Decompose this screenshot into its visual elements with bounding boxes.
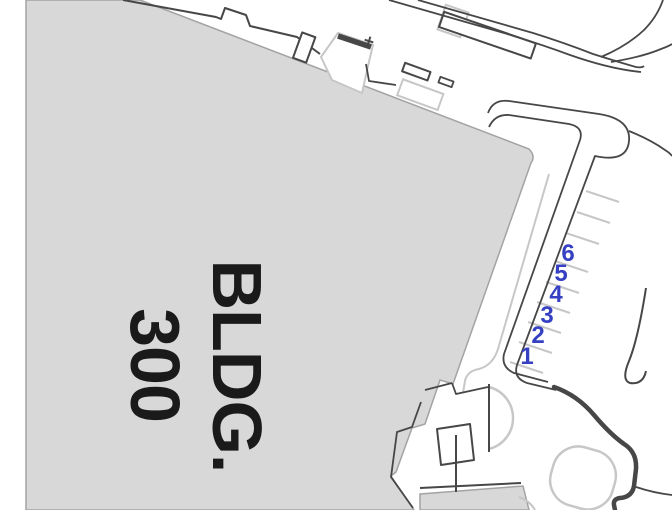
landscape-pad — [544, 440, 622, 510]
median-island — [402, 63, 430, 81]
parking-divider — [586, 191, 619, 202]
building-name-line2: 300 — [116, 308, 194, 422]
north-road-edge-lower — [389, 0, 641, 72]
north-wall-drop — [366, 64, 396, 85]
road-spur-southeast — [636, 487, 672, 495]
parking-road-exit-branch — [629, 131, 672, 156]
hook-road-east — [625, 288, 646, 383]
cross-marker-icon: + — [361, 30, 377, 52]
parking-divider — [577, 212, 610, 223]
site-plan-canvas: 6 5 4 3 2 1 BLDG. 300 + — [0, 0, 672, 510]
median-dash — [438, 77, 453, 87]
site-plan-view: 6 5 4 3 2 1 BLDG. 300 + — [0, 0, 672, 510]
north-road-branch-up — [601, 0, 663, 57]
driveway-arc — [489, 387, 513, 449]
building-name-line1: BLDG. — [198, 260, 276, 473]
parking-space-label-1: 1 — [520, 343, 533, 370]
adjacent-building-fragment — [420, 486, 529, 510]
